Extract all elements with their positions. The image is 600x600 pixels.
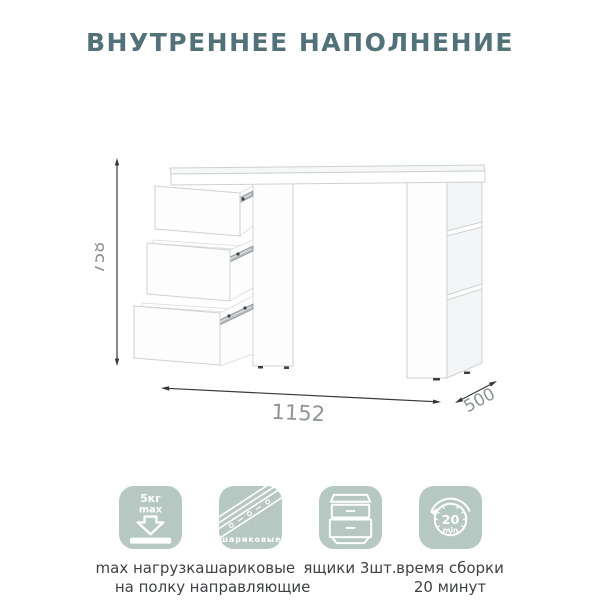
features-row: 5кг max max нагрузка на полку [100,486,500,597]
depth-dimension: 500 [455,381,499,417]
timer-unit: min [442,525,457,534]
desk-drawing: 758 1152 500 [95,136,505,476]
feature-label: шариковые направляющие [190,559,311,597]
feature-label: время сборки 20 минут [396,559,504,597]
feature-slides: шариковые шариковые направляющие [200,486,300,597]
feature-drawers: ящики 3шт. [300,486,400,597]
shelf-bar [129,538,170,544]
right-pedestal-shelves [407,173,482,378]
feature-max-load: 5кг max max нагрузка на полку [100,486,200,597]
assembly-time-icon: 20 min [419,486,482,549]
width-dimension: 1152 [161,386,441,426]
page-title: ВНУТРЕННЕЕ НАПОЛНЕНИЕ [0,28,600,57]
feature-assembly-time: 20 min время сборки 20 минут [400,486,500,597]
drawer-slides-caption: шариковые [219,535,281,544]
height-value: 758 [95,242,109,274]
down-arrow-icon [137,517,163,535]
drawers-icon [319,486,382,549]
drawer-top [155,186,253,236]
shelf-load-icon-weight: 5кг [140,492,161,505]
drawer-slides-icon: шариковые [219,486,282,549]
drawer-middle [147,240,253,301]
feature-label: max нагрузка на полку [96,559,205,597]
depth-value: 500 [461,384,499,417]
product-diagram: 758 1152 500 [95,136,505,476]
desk-top [170,165,485,185]
height-dimension: 758 [95,158,119,366]
shelf-load-icon: 5кг max [119,486,182,549]
shelf-load-icon-max: max [138,505,162,516]
width-value: 1152 [271,400,326,426]
feature-label: ящики 3шт. [303,559,396,578]
